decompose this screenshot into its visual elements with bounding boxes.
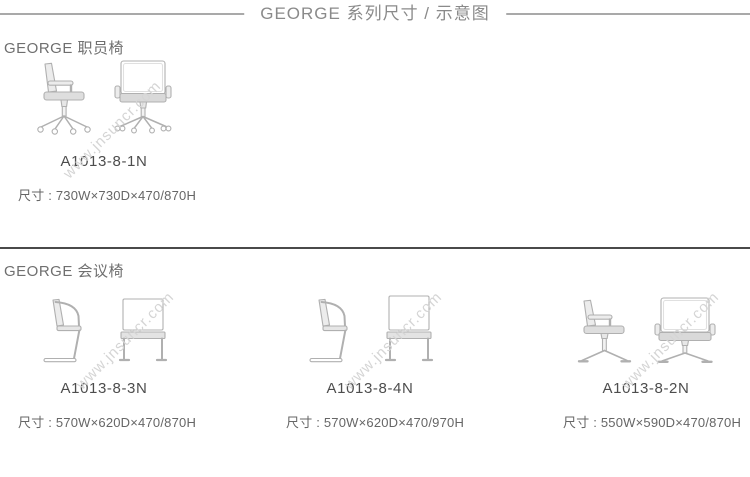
model-number: A1013-8-2N: [563, 380, 729, 397]
section-heading-conference-chair: GEORGE 会议椅: [4, 260, 124, 281]
office-chair-front-view: [110, 58, 176, 150]
dimensions-text: 尺寸 : 570W×620D×470/970H: [286, 412, 454, 431]
figure-row: [18, 58, 190, 150]
title-band: GEORGE 系列尺寸 / 示意图: [0, 0, 750, 30]
product-group-a1013-8-4n: www.jnsuncr.com A1013-8-4N 尺寸 : 570W×620…: [286, 295, 454, 431]
swivel-base-chair-front-view: [652, 295, 718, 377]
dimensions-text: 尺寸 : 550W×590D×470/870H: [563, 412, 729, 431]
figure-row: [18, 295, 190, 377]
section-divider-line: [0, 247, 750, 249]
dimensions-text: 尺寸 : 570W×620D×470/870H: [18, 412, 190, 431]
model-number: A1013-8-3N: [18, 380, 190, 397]
figure-row: [286, 295, 454, 377]
model-number: A1013-8-4N: [286, 380, 454, 397]
product-group-a1013-8-2n: www.jnsuncr.com A1013-8-2N 尺寸 : 550W×590…: [563, 295, 729, 431]
product-group-a1013-8-1n: www.jnsuncr.com A1013-8-1N 尺寸 : 730W×730…: [18, 58, 190, 204]
page-title: GEORGE 系列尺寸 / 示意图: [244, 3, 506, 25]
office-chair-side-view: [32, 58, 98, 150]
cantilever-chair-front-view: [110, 295, 176, 377]
cantilever-chair-side-view: [298, 295, 364, 377]
product-group-a1013-8-3n: www.jnsuncr.com A1013-8-3N 尺寸 : 570W×620…: [18, 295, 190, 431]
model-number: A1013-8-1N: [18, 153, 190, 170]
section-heading-staff-chair: GEORGE 职员椅: [4, 37, 124, 58]
dimensions-text: 尺寸 : 730W×730D×470/870H: [18, 185, 190, 204]
figure-row: [563, 295, 729, 377]
cantilever-chair-tall-front-view: [376, 295, 442, 377]
cantilever-chair-side-view: [32, 295, 98, 377]
swivel-base-chair-side-view: [574, 295, 640, 377]
